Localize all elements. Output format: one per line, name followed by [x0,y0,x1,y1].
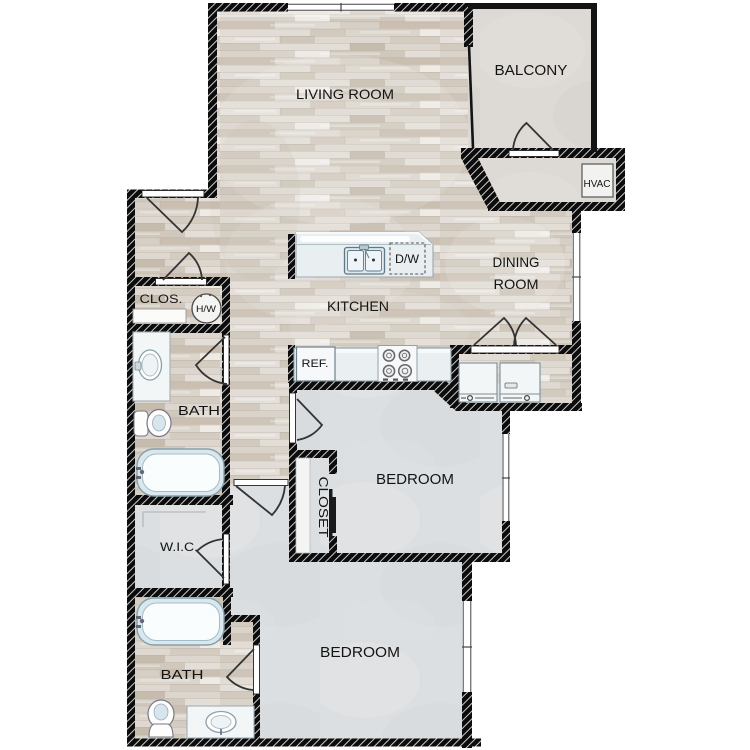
svg-text:KITCHEN: KITCHEN [327,298,389,314]
svg-text:BALCONY: BALCONY [495,63,568,79]
svg-text:REF.: REF. [302,358,329,370]
svg-text:HVAC: HVAC [584,178,611,190]
svg-text:DINING: DINING [493,254,540,270]
svg-text:W.I.C.: W.I.C. [160,540,198,554]
svg-text:BEDROOM: BEDROOM [376,471,454,488]
svg-text:H/W: H/W [196,304,217,314]
svg-text:ROOM: ROOM [494,276,539,292]
svg-text:CLOS.: CLOS. [140,292,183,306]
svg-text:CLOSET: CLOSET [316,477,330,538]
svg-text:LIVING ROOM: LIVING ROOM [296,86,394,102]
svg-text:BATH: BATH [161,667,204,682]
svg-text:D/W: D/W [395,254,419,266]
svg-text:BATH: BATH [178,403,220,418]
svg-text:BEDROOM: BEDROOM [320,644,400,661]
